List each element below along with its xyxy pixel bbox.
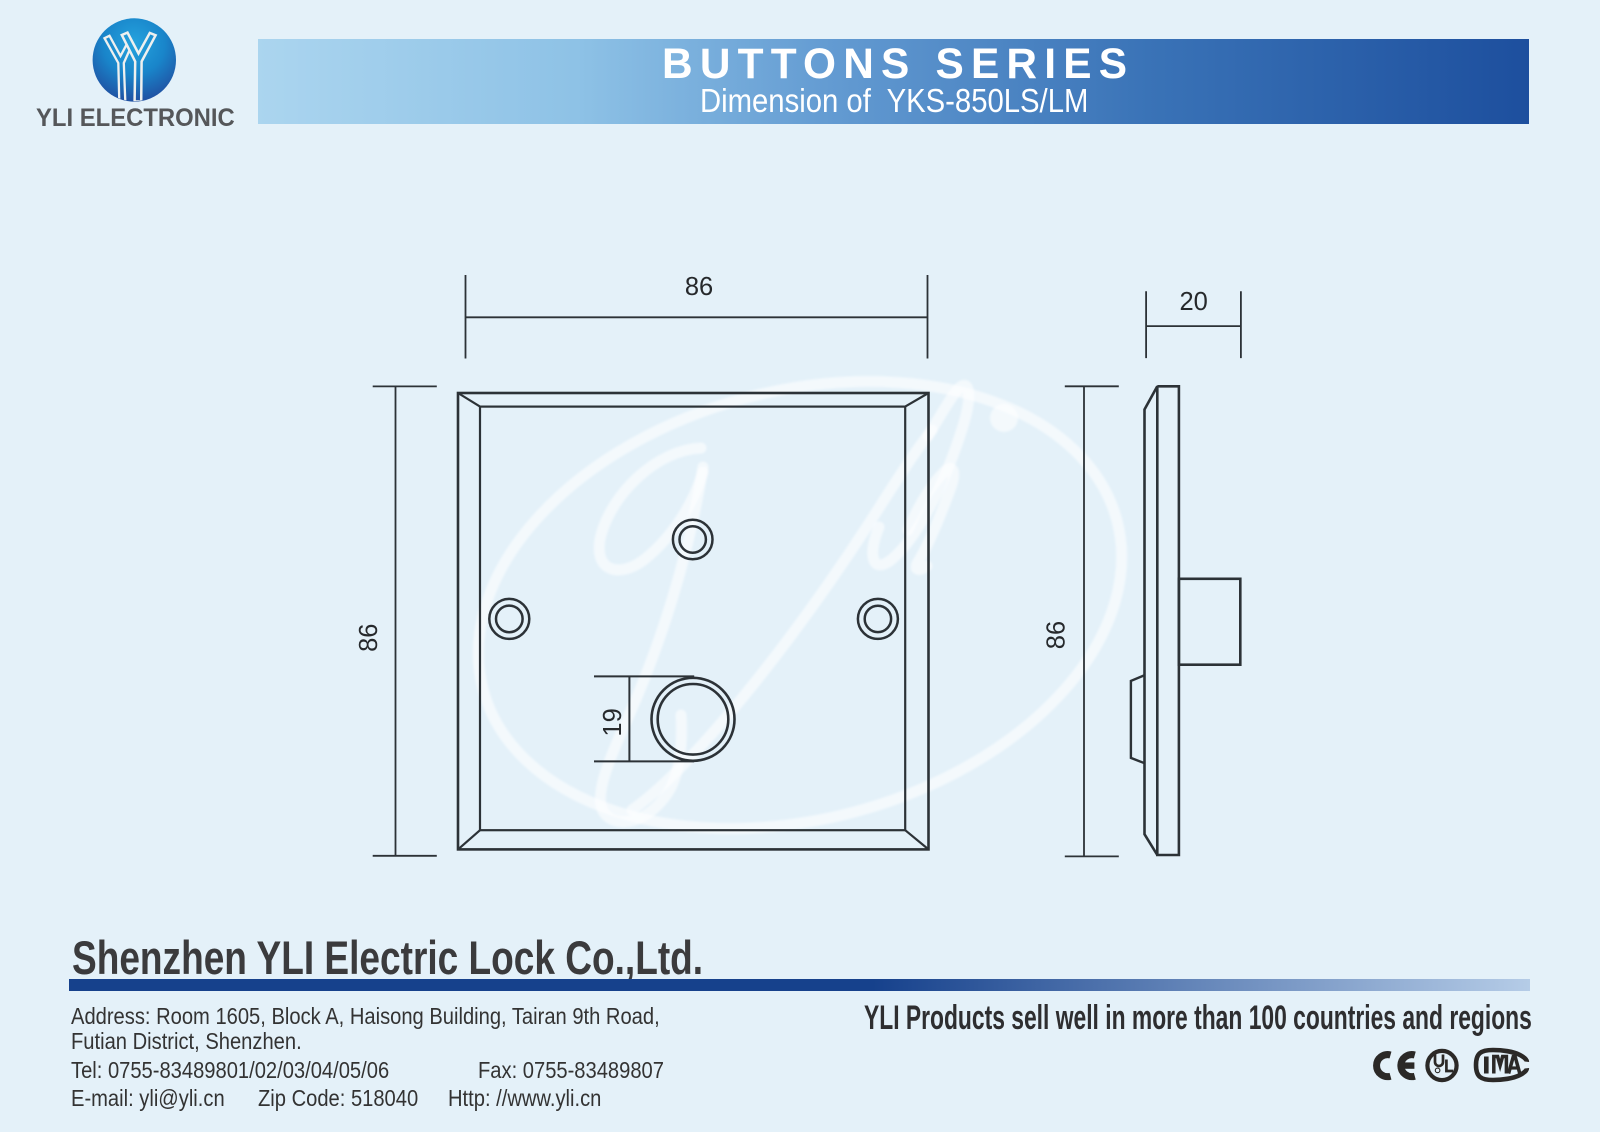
svg-text:86: 86 — [355, 624, 383, 652]
svg-text:20: 20 — [1180, 288, 1208, 316]
svg-text:86: 86 — [685, 273, 713, 301]
svg-text:86: 86 — [1043, 621, 1071, 649]
svg-text:19: 19 — [599, 708, 627, 736]
